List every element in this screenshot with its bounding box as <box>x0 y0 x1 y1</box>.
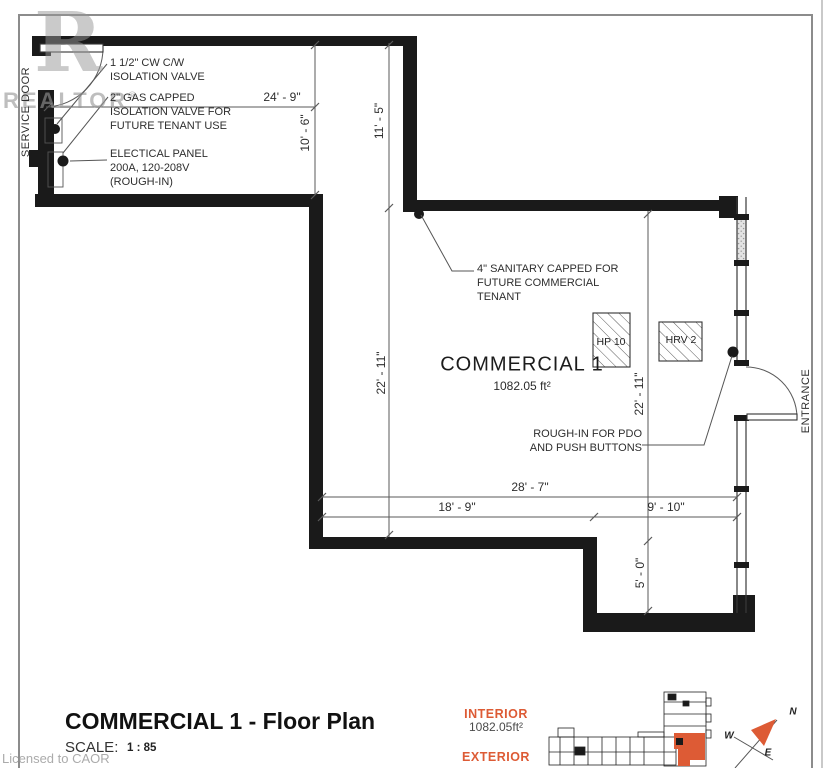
hrv-unit-label: HRV 2 <box>666 334 697 346</box>
legend-exterior-label: EXTERIOR <box>462 750 530 764</box>
floor-plan-sheet: R REALTOR® Licensed to CAOR SERVICE DOOR… <box>0 0 825 768</box>
electrical-panel-note: ELECTICAL PANEL 200A, 120-208V (ROUGH-IN… <box>110 147 208 189</box>
gas-valve-note: 2" GAS CAPPED ISOLATION VALVE FOR FUTURE… <box>110 91 231 133</box>
compass-north-label: N <box>789 707 796 718</box>
service-door-label: SERVICE DOOR <box>19 67 33 157</box>
dim-upper-left-height: 10' - 6" <box>298 114 312 151</box>
room-name: COMMERCIAL 1 <box>440 354 604 377</box>
realtor-logo-watermark: R <box>34 2 102 84</box>
room-area: 1082.05 ft² <box>493 379 550 393</box>
highlighted-unit <box>674 733 705 766</box>
storefront-wall <box>734 197 749 613</box>
pdo-note-line1: ROUGH-IN FOR PDO <box>520 427 642 441</box>
cw-valve-note-line2: ISOLATION VALVE <box>110 70 205 84</box>
legend-interior-value: 1082.05ft² <box>469 720 523 734</box>
dim-bottom-left: 18' - 9" <box>438 500 475 514</box>
sanitary-note-line2: FUTURE COMMERCIAL <box>477 276 618 290</box>
sanitary-note-line3: TENANT <box>477 290 618 304</box>
electrical-panel-note-line3: (ROUGH-IN) <box>110 175 208 189</box>
dim-top-width: 24' - 9" <box>263 90 300 104</box>
pdo-note: ROUGH-IN FOR PDO AND PUSH BUTTONS <box>520 427 642 455</box>
entrance-door <box>746 367 797 420</box>
hp-unit-label: HP 10 <box>597 336 626 348</box>
north-arrow <box>751 719 776 746</box>
dim-room-height-left: 22' - 11" <box>374 351 388 394</box>
cw-valve-symbol <box>50 124 60 134</box>
scale-value: 1 : 85 <box>127 742 156 754</box>
electrical-panel-note-line1: ELECTICAL PANEL <box>110 147 208 161</box>
dim-bottom-total: 28' - 7" <box>511 480 548 494</box>
pdo-note-line2: AND PUSH BUTTONS <box>520 441 642 455</box>
gas-valve-symbol <box>58 156 69 167</box>
site-key-plan <box>549 692 711 766</box>
drawing-title: COMMERCIAL 1 - Floor Plan <box>65 708 375 735</box>
legend-interior-label: INTERIOR <box>464 707 528 721</box>
sanitary-note-line1: 4" SANITARY CAPPED FOR <box>477 262 618 276</box>
cw-valve-note: 1 1/2" CW C/W ISOLATION VALVE <box>110 56 205 84</box>
compass-rose <box>734 719 777 768</box>
dim-bottom-right: 9' - 10" <box>647 500 684 514</box>
cw-valve-note-line1: 1 1/2" CW C/W <box>110 56 205 70</box>
electrical-panel-note-line2: 200A, 120-208V <box>110 161 208 175</box>
gas-valve-note-line1: 2" GAS CAPPED <box>110 91 231 105</box>
dim-room-height-right: 22' - 11" <box>632 372 646 415</box>
entrance-label: ENTRANCE <box>799 369 813 434</box>
dim-step-height: 5' - 0" <box>633 558 647 589</box>
scale-label: SCALE: <box>65 739 118 756</box>
dim-upper-right-height: 11' - 5" <box>372 103 386 139</box>
compass-east-label: E <box>765 748 772 759</box>
compass-west-label: W <box>724 731 733 742</box>
sanitary-note: 4" SANITARY CAPPED FOR FUTURE COMMERCIAL… <box>477 262 618 304</box>
gas-valve-note-line3: FUTURE TENANT USE <box>110 119 231 133</box>
gas-valve-note-line2: ISOLATION VALVE FOR <box>110 105 231 119</box>
storefront-mullions <box>734 214 749 568</box>
pdo-symbol <box>728 347 739 358</box>
